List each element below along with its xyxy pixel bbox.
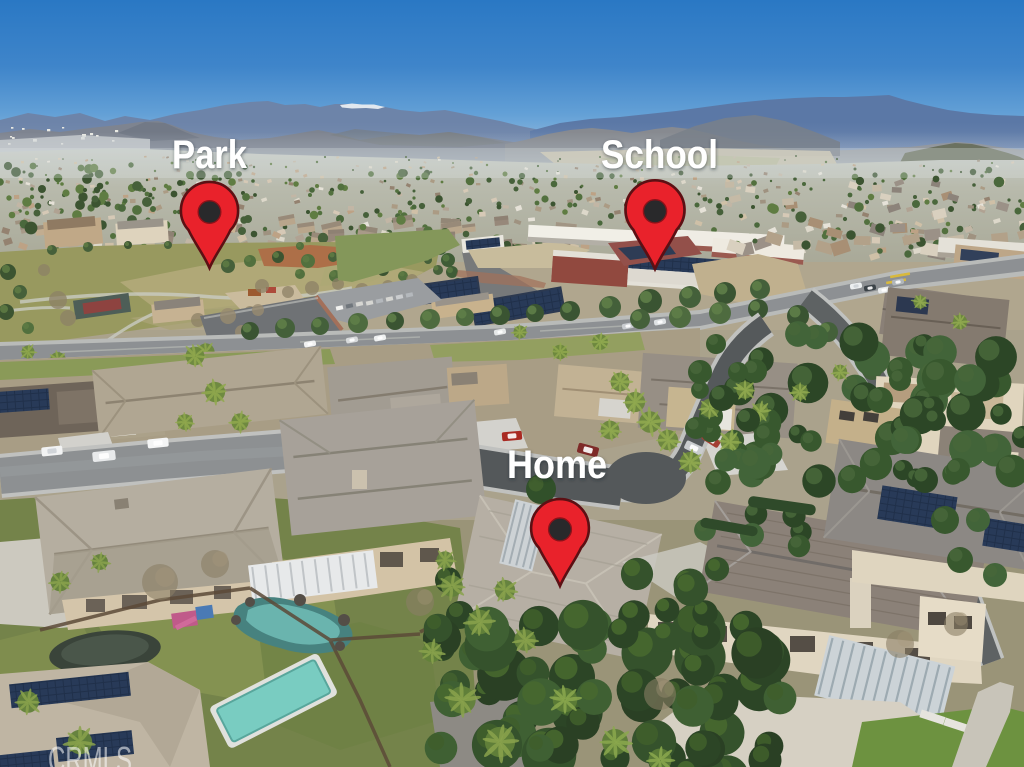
svg-text:Home: Home: [507, 443, 607, 487]
svg-text:CRMLS: CRMLS: [48, 739, 132, 767]
svg-text:School: School: [601, 133, 718, 177]
svg-text:Park: Park: [172, 133, 248, 177]
